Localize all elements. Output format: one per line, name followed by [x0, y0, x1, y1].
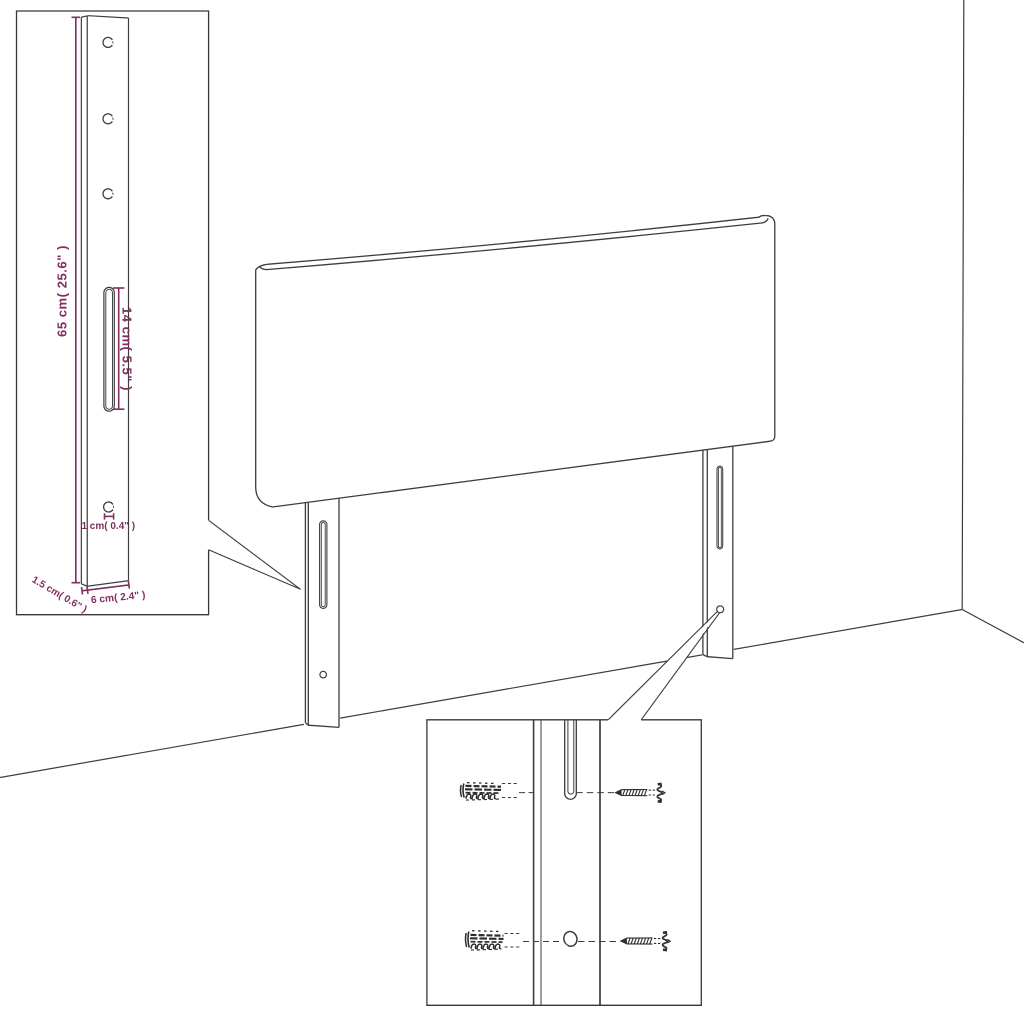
svg-text:14 cm( 5.5" ): 14 cm( 5.5" ) — [119, 307, 134, 391]
svg-text:65 cm( 25.6" ): 65 cm( 25.6" ) — [55, 245, 70, 337]
svg-text:1 cm( 0.4" ): 1 cm( 0.4" ) — [81, 521, 135, 532]
